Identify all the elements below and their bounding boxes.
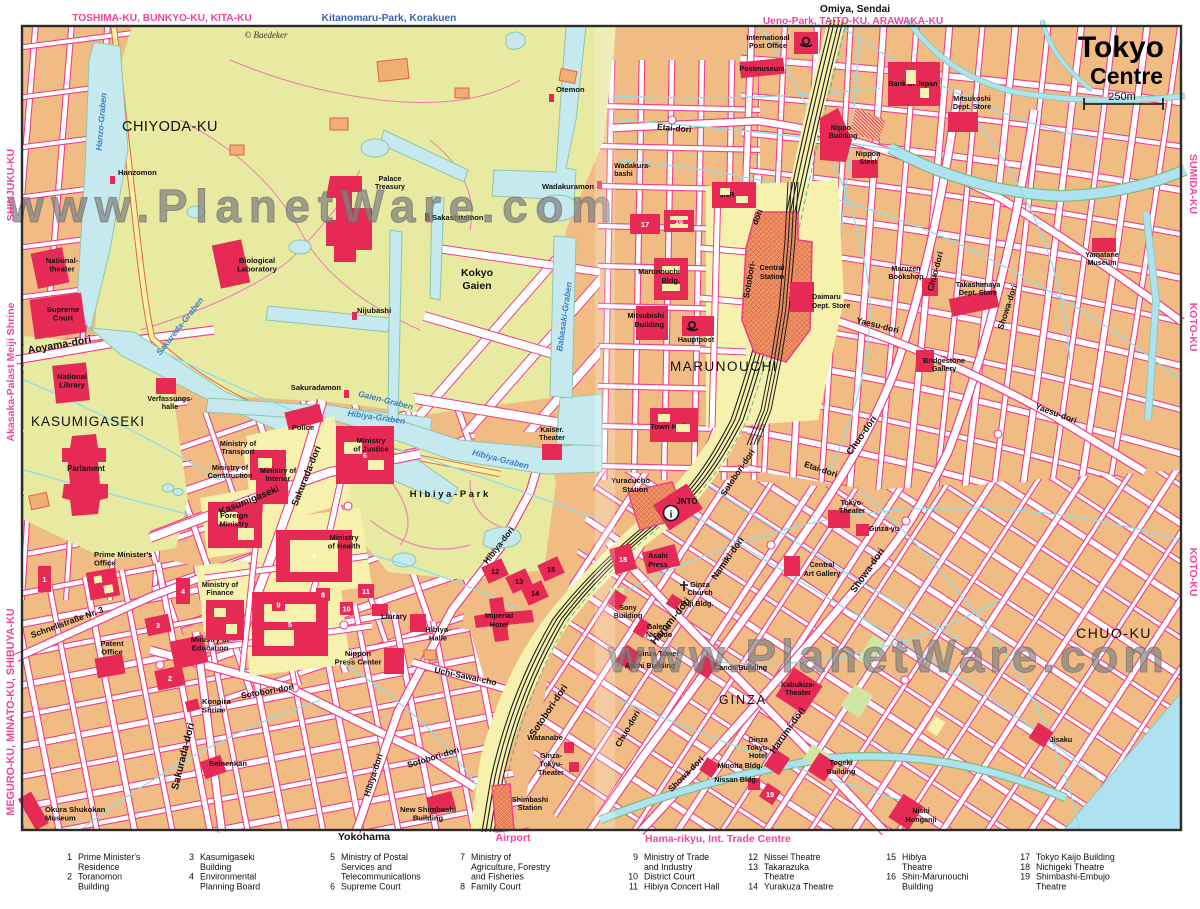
- svg-text:Akasaka-Palast Meiji Shrine: Akasaka-Palast Meiji Shrine: [5, 302, 17, 441]
- svg-text:Airport: Airport: [496, 832, 532, 844]
- svg-text:Church: Church: [687, 588, 712, 597]
- svg-text:Building: Building: [413, 814, 444, 823]
- svg-text:Hotel: Hotel: [490, 620, 508, 629]
- svg-text:Press Center: Press Center: [335, 658, 382, 667]
- svg-text:Bookshop: Bookshop: [888, 272, 924, 281]
- svg-text:Finance: Finance: [206, 588, 233, 597]
- svg-text:of Justice: of Justice: [353, 445, 388, 454]
- svg-text:Tokyo: Tokyo: [1078, 31, 1164, 64]
- svg-text:Education: Education: [192, 644, 229, 653]
- svg-text:9: 9: [633, 852, 638, 862]
- svg-text:15: 15: [886, 852, 896, 862]
- svg-text:7: 7: [460, 852, 465, 862]
- svg-text:GINZA: GINZA: [719, 693, 767, 707]
- svg-text:Building: Building: [78, 881, 109, 891]
- svg-text:15: 15: [547, 565, 555, 574]
- svg-text:Parlament: Parlament: [67, 464, 105, 473]
- svg-text:Interior: Interior: [266, 474, 291, 483]
- svg-text:Theatre: Theatre: [902, 862, 932, 872]
- svg-text:Court: Court: [53, 314, 74, 323]
- svg-text:Building: Building: [827, 767, 856, 776]
- svg-text:© Baedeker: © Baedeker: [244, 30, 288, 40]
- svg-text:Honganji: Honganji: [906, 815, 937, 824]
- svg-text:Transport: Transport: [221, 447, 255, 456]
- svg-text:6: 6: [330, 881, 335, 891]
- svg-text:13: 13: [748, 862, 758, 872]
- svg-text:1: 1: [67, 852, 72, 862]
- svg-text:Ministry of Postal: Ministry of Postal: [341, 852, 408, 862]
- svg-text:MARUNOUCHI: MARUNOUCHI: [670, 359, 778, 374]
- svg-text:MEGURO-KU, MINATO-KU, SHIBUYA-: MEGURO-KU, MINATO-KU, SHIBUYA-KU: [5, 608, 17, 816]
- svg-text:Ministry: Ministry: [219, 520, 249, 529]
- svg-text:theater: theater: [49, 265, 74, 274]
- svg-text:4: 4: [189, 872, 194, 882]
- svg-text:Minolta Bldg.: Minolta Bldg.: [717, 761, 762, 770]
- svg-text:Station: Station: [518, 803, 542, 812]
- svg-text:12: 12: [748, 852, 758, 862]
- svg-text:Building: Building: [634, 320, 664, 329]
- svg-text:1: 1: [42, 575, 46, 584]
- svg-text:halle: halle: [162, 402, 178, 411]
- svg-text:Theater: Theater: [538, 768, 564, 777]
- svg-text:Gallery: Gallery: [932, 364, 956, 373]
- svg-text:11: 11: [362, 587, 370, 596]
- svg-text:Otemon: Otemon: [556, 85, 585, 94]
- svg-text:16: 16: [886, 872, 896, 882]
- svg-text:2: 2: [168, 674, 172, 683]
- svg-text:Toranomon: Toranomon: [78, 872, 122, 882]
- svg-text:Services and: Services and: [341, 862, 392, 872]
- svg-text:JNTO: JNTO: [676, 497, 697, 506]
- svg-text:Hotel: Hotel: [749, 751, 767, 760]
- svg-text:Jisaku: Jisaku: [1050, 735, 1072, 744]
- svg-text:Station: Station: [760, 272, 784, 281]
- svg-text:Mitsubishi: Mitsubishi: [627, 311, 664, 320]
- svg-text:5: 5: [288, 620, 292, 629]
- svg-text:Togeki: Togeki: [830, 758, 853, 767]
- svg-text:Dept. Store: Dept. Store: [812, 301, 850, 310]
- svg-text:Residence: Residence: [78, 862, 120, 872]
- svg-text:Yuracucho: Yuracucho: [611, 476, 650, 485]
- svg-text:Kasumigaseki: Kasumigaseki: [200, 852, 255, 862]
- svg-text:Art Gallery: Art Gallery: [804, 569, 841, 578]
- svg-text:KASUMIGASEKI: KASUMIGASEKI: [31, 414, 145, 429]
- svg-text:14: 14: [748, 881, 758, 891]
- svg-text:Gaien: Gaien: [462, 280, 491, 292]
- svg-text:12: 12: [491, 567, 499, 576]
- svg-text:Theater: Theater: [785, 688, 811, 697]
- svg-text:Prime Minister's: Prime Minister's: [78, 852, 141, 862]
- svg-text:Tokyo Kaijo Building: Tokyo Kaijo Building: [1036, 852, 1115, 862]
- svg-text:3: 3: [189, 852, 194, 862]
- svg-text:Nichigeki Theatre: Nichigeki Theatre: [1036, 862, 1104, 872]
- svg-text:Telecommunications: Telecommunications: [341, 872, 421, 882]
- svg-text:Planning Board: Planning Board: [200, 881, 260, 891]
- svg-text:SHINJUKU-KU: SHINJUKU-KU: [5, 149, 17, 221]
- svg-text:District Court: District Court: [644, 872, 695, 882]
- svg-text:Takarazuka: Takarazuka: [764, 862, 809, 872]
- svg-text:Agriculture, Forestry: Agriculture, Forestry: [471, 862, 551, 872]
- svg-text:Daimaru: Daimaru: [812, 292, 841, 301]
- svg-text:Family Court: Family Court: [471, 881, 521, 891]
- svg-text:250m: 250m: [1108, 91, 1136, 103]
- svg-text:11: 11: [629, 881, 638, 891]
- svg-text:Nishi: Nishi: [912, 806, 930, 815]
- svg-text:Construction: Construction: [208, 471, 253, 480]
- svg-text:www.PlanetWare.com: www.PlanetWare.com: [607, 630, 1164, 682]
- svg-text:Press: Press: [648, 560, 668, 569]
- svg-text:Centre: Centre: [1090, 63, 1163, 89]
- svg-text:Ginza-yu: Ginza-yu: [869, 524, 899, 533]
- svg-text:Halle: Halle: [429, 634, 447, 643]
- svg-text:KOTO-KU: KOTO-KU: [1187, 548, 1199, 597]
- svg-text:10: 10: [628, 872, 638, 882]
- svg-text:Kokyo: Kokyo: [461, 267, 493, 279]
- svg-text:Office: Office: [101, 648, 123, 657]
- svg-text:Asahi: Asahi: [648, 551, 668, 560]
- svg-text:Shin-Marunouchi: Shin-Marunouchi: [902, 872, 969, 882]
- svg-text:Nissei Theatre: Nissei Theatre: [764, 852, 821, 862]
- svg-text:19: 19: [766, 790, 774, 799]
- svg-text:Museum: Museum: [1087, 258, 1116, 267]
- svg-text:8: 8: [321, 591, 325, 600]
- svg-text:Ministry of: Ministry of: [471, 852, 512, 862]
- svg-text:Sakuradamon: Sakuradamon: [291, 383, 342, 392]
- svg-text:Dept. Store: Dept. Store: [959, 288, 997, 297]
- svg-text:www.PlanetWare.com: www.PlanetWare.com: [7, 180, 612, 232]
- svg-text:Ueno-Park, TAITO-KU, ARAWAKA-K: Ueno-Park, TAITO-KU, ARAWAKA-KU: [763, 16, 943, 27]
- svg-text:Yurakuza Theatre: Yurakuza Theatre: [764, 881, 833, 891]
- svg-text:H i b i y a - P a r k: H i b i y a - P a r k: [410, 489, 489, 500]
- svg-text:and Fisheries: and Fisheries: [471, 872, 524, 882]
- svg-text:Kitanomaru-Park, Korakuen: Kitanomaru-Park, Korakuen: [322, 13, 457, 24]
- svg-text:5: 5: [330, 852, 335, 862]
- svg-text:KOTO-KU: KOTO-KU: [1187, 303, 1199, 352]
- svg-text:Hanzomon: Hanzomon: [118, 168, 157, 177]
- svg-text:Ministry of Trade: Ministry of Trade: [644, 852, 709, 862]
- svg-text:Museum: Museum: [45, 814, 76, 823]
- svg-text:Hama-rikyu, Int. Trade Centre: Hama-rikyu, Int. Trade Centre: [645, 833, 791, 845]
- svg-text:Laboratory: Laboratory: [237, 265, 277, 274]
- svg-text:Yokohama: Yokohama: [338, 831, 390, 843]
- svg-text:18: 18: [619, 555, 627, 564]
- svg-text:Theater: Theater: [539, 433, 565, 442]
- svg-text:Building: Building: [614, 611, 643, 620]
- svg-text:Hauptpost: Hauptpost: [678, 335, 715, 344]
- svg-text:8: 8: [460, 881, 465, 891]
- svg-text:Steel: Steel: [859, 157, 876, 166]
- svg-text:19: 19: [1020, 872, 1030, 882]
- svg-text:Post Office: Post Office: [749, 41, 787, 50]
- svg-text:Environmental: Environmental: [200, 872, 256, 882]
- svg-text:9: 9: [276, 601, 280, 610]
- svg-text:Omiya, Sendai: Omiya, Sendai: [820, 4, 890, 15]
- svg-text:13: 13: [515, 577, 523, 586]
- svg-text:Nissan Bldg.: Nissan Bldg.: [714, 775, 758, 784]
- svg-text:Supreme Court: Supreme Court: [341, 881, 401, 891]
- svg-text:of Health: of Health: [328, 542, 361, 551]
- svg-text:Hibiya: Hibiya: [902, 852, 927, 862]
- svg-text:Theatre: Theatre: [764, 872, 794, 882]
- svg-text:TOSHIMA-KU, BUNKYO-KU, KITA-KU: TOSHIMA-KU, BUNKYO-KU, KITA-KU: [72, 13, 252, 24]
- svg-text:Postmuseum: Postmuseum: [739, 64, 784, 73]
- svg-text:Imperial: Imperial: [485, 611, 513, 620]
- svg-text:Dept. Store: Dept. Store: [953, 102, 991, 111]
- svg-text:Central: Central: [760, 263, 785, 272]
- svg-text:18: 18: [1020, 862, 1030, 872]
- svg-text:SUMIDA-KU: SUMIDA-KU: [1187, 154, 1199, 214]
- svg-text:14: 14: [531, 589, 540, 598]
- svg-text:Central: Central: [810, 560, 835, 569]
- svg-text:Marunouchi: Marunouchi: [638, 267, 680, 276]
- svg-text:Building: Building: [200, 862, 231, 872]
- svg-text:3: 3: [156, 621, 160, 630]
- svg-text:Station: Station: [622, 485, 648, 494]
- svg-text:Seinenkan: Seinenkan: [209, 759, 247, 768]
- svg-text:Theatre: Theatre: [1036, 881, 1066, 891]
- svg-text:Bldg.: Bldg.: [662, 276, 680, 285]
- svg-text:7: 7: [312, 552, 316, 561]
- svg-text:Nijubashi: Nijubashi: [357, 306, 391, 315]
- svg-text:10: 10: [342, 605, 350, 614]
- svg-text:2: 2: [67, 872, 72, 882]
- svg-text:Shrine: Shrine: [202, 706, 226, 715]
- svg-text:17: 17: [641, 220, 649, 229]
- svg-text:Shimbashi-Embujo: Shimbashi-Embujo: [1036, 872, 1110, 882]
- svg-text:and Industry: and Industry: [644, 862, 693, 872]
- svg-text:Library: Library: [381, 612, 408, 621]
- svg-text:bashi: bashi: [614, 169, 633, 178]
- svg-text:CHIYODA-KU: CHIYODA-KU: [122, 119, 218, 135]
- svg-text:17: 17: [1020, 852, 1030, 862]
- svg-text:Office: Office: [94, 559, 116, 568]
- svg-text:i: i: [670, 510, 673, 521]
- svg-text:Hibiya Concert Hall: Hibiya Concert Hall: [644, 881, 719, 891]
- svg-text:Building: Building: [902, 881, 933, 891]
- svg-text:Theater: Theater: [839, 506, 865, 515]
- svg-text:Library: Library: [59, 381, 86, 390]
- svg-text:Police: Police: [292, 423, 314, 432]
